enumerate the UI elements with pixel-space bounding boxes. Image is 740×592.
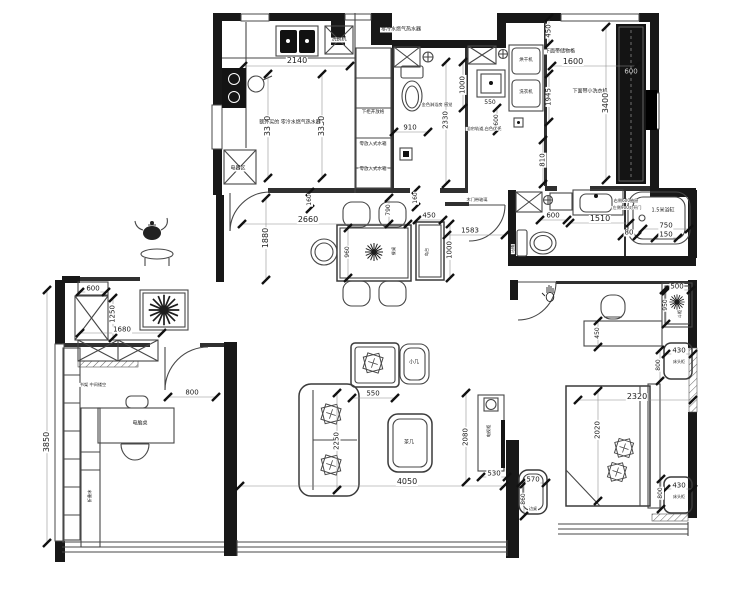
living-room <box>299 343 505 496</box>
shower-stall <box>477 70 505 97</box>
cooktop-stove <box>222 68 272 108</box>
tv-screen <box>501 420 505 468</box>
appliance-shaft <box>224 150 256 184</box>
side-table-small <box>400 344 429 384</box>
exterior-walls <box>55 13 697 562</box>
floor-drain <box>400 148 412 160</box>
stool <box>126 396 148 408</box>
laundry-shower-room <box>468 45 543 127</box>
toilet <box>517 230 556 256</box>
decor-table <box>141 249 173 259</box>
nightstand-bottom <box>664 477 692 513</box>
lounge-chair <box>351 343 399 387</box>
bookshelf <box>63 348 80 540</box>
kitchen <box>222 13 391 231</box>
wok-pan <box>248 76 264 92</box>
folding-bed-cabinet <box>81 408 100 547</box>
floor-plan-canvas: 零冷水燃气热水器214033303330洗碗机额外买的 零冷水燃气热水器下柜开放… <box>0 0 740 592</box>
teapot-decor <box>135 218 173 266</box>
washer-dryer-stack <box>509 45 543 111</box>
exhaust-shaft <box>394 47 433 67</box>
coffee-table <box>388 414 432 472</box>
vanity-sink <box>573 190 623 215</box>
study-door-swing <box>165 347 208 390</box>
toilet <box>401 66 423 111</box>
kitchen-door-swing <box>230 192 270 231</box>
storage-niche <box>550 193 572 210</box>
nightstand-top <box>664 343 692 379</box>
dining-area <box>311 202 444 306</box>
interior-walls <box>62 21 688 347</box>
floor-medallion <box>140 290 188 330</box>
computer-desk <box>98 408 174 443</box>
floor-plan-drawing <box>0 0 740 592</box>
desk-chair <box>121 444 149 460</box>
dining-chairs <box>311 202 406 306</box>
entry-hall <box>75 218 188 361</box>
table-centerpiece <box>365 243 383 261</box>
tall-cabinet-column <box>356 48 391 188</box>
wardrobe <box>616 24 646 184</box>
exhaust-shaft <box>516 192 553 212</box>
bathroom-1 <box>394 47 433 160</box>
balcony-window-tracks <box>62 522 688 556</box>
bedroom-chair <box>601 295 625 319</box>
floor-drain <box>514 118 523 127</box>
bath-door-swing <box>469 205 505 241</box>
exhaust-shaft <box>468 46 508 64</box>
side-table <box>519 470 547 514</box>
bed <box>566 384 660 508</box>
side-window <box>646 90 657 130</box>
bedroom-door-swing <box>518 282 556 320</box>
study-room <box>63 347 208 547</box>
tv-cabinet <box>478 395 505 471</box>
island-counter <box>416 222 444 280</box>
